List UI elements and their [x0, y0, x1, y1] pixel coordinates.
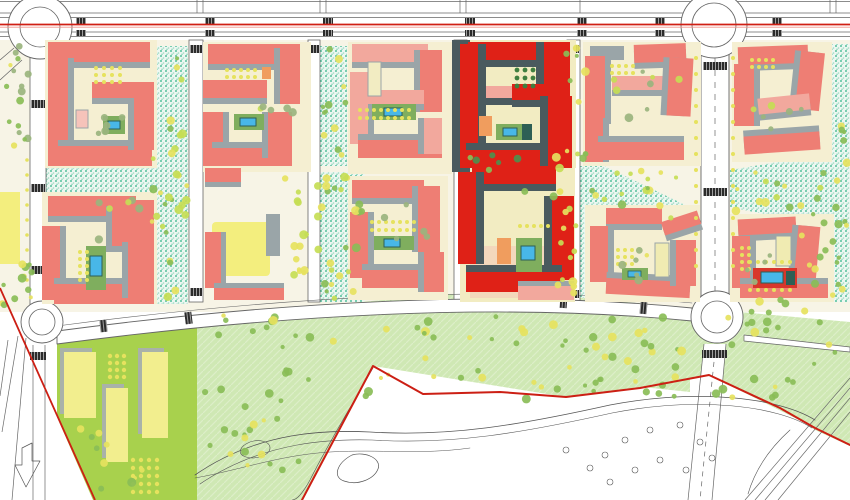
tree-dot — [370, 228, 374, 232]
tree — [672, 394, 677, 399]
orange-court — [497, 238, 511, 264]
tree-dot — [731, 136, 735, 140]
building-roof — [598, 142, 684, 160]
tree — [174, 64, 180, 70]
tree — [647, 80, 654, 87]
tree — [489, 152, 495, 158]
tree — [202, 389, 208, 395]
tree — [830, 238, 837, 245]
tree — [729, 394, 735, 400]
tree — [29, 295, 33, 299]
tree-dot — [731, 248, 735, 252]
tree — [811, 212, 815, 216]
tree — [614, 170, 620, 176]
tree — [633, 379, 638, 384]
building-roof — [666, 57, 693, 116]
tree — [641, 70, 645, 74]
tree — [608, 333, 617, 342]
building — [585, 56, 611, 124]
tree-dot — [110, 80, 114, 84]
tree — [350, 288, 357, 295]
tree — [424, 233, 431, 240]
tree — [290, 271, 298, 279]
tree-dot — [748, 288, 752, 292]
tree-dot — [370, 220, 374, 224]
tree — [293, 256, 300, 263]
tree-dot — [85, 257, 89, 261]
tree — [671, 373, 679, 381]
tree — [171, 287, 179, 295]
tree-dot — [694, 232, 698, 236]
tree — [177, 132, 184, 139]
tree — [836, 282, 841, 287]
tree-dot — [155, 474, 159, 478]
tree — [658, 170, 663, 175]
tree-dot — [764, 58, 768, 62]
tree — [139, 467, 144, 472]
crosswalk-mark — [703, 62, 727, 70]
tree-dot — [94, 80, 98, 84]
tree — [207, 443, 212, 448]
tree-dot — [115, 375, 119, 379]
tree-dot — [78, 271, 82, 275]
tree — [381, 214, 388, 221]
tree — [568, 277, 577, 286]
tree — [568, 78, 573, 83]
pool-water — [503, 128, 517, 136]
tree — [329, 282, 334, 287]
tree — [217, 386, 225, 394]
building — [418, 252, 444, 292]
tree — [563, 51, 569, 57]
tree — [160, 224, 165, 229]
building — [102, 384, 128, 462]
tree — [602, 197, 608, 203]
tree — [555, 282, 562, 289]
tree-dot — [523, 68, 528, 73]
tree — [16, 43, 23, 50]
tree-dot — [147, 458, 151, 462]
tree — [817, 185, 823, 191]
tree-dot — [108, 354, 112, 358]
tree — [7, 119, 12, 124]
tree — [785, 377, 791, 383]
tree — [766, 310, 772, 316]
tree — [589, 333, 597, 341]
tree — [468, 155, 473, 160]
tree — [89, 434, 95, 440]
tree — [151, 156, 156, 161]
tree-dot — [147, 482, 151, 486]
tree — [613, 86, 621, 94]
tree-dot — [694, 72, 698, 76]
crosswalk-mark — [702, 350, 727, 358]
tree-dot — [771, 65, 775, 69]
tree-dot — [757, 58, 761, 62]
building — [205, 168, 241, 187]
tree-dot — [756, 288, 760, 292]
tree-dot — [391, 228, 395, 232]
tree-dot — [122, 375, 126, 379]
tree-dot — [131, 490, 135, 494]
tree — [634, 272, 639, 277]
tree-dot — [523, 76, 528, 81]
tree — [786, 108, 793, 115]
tree — [95, 430, 102, 437]
tree-dot — [405, 228, 409, 232]
building — [661, 57, 694, 116]
tree — [774, 180, 780, 186]
plan-root — [0, 0, 850, 500]
tree-dot — [131, 458, 135, 462]
tree — [568, 255, 573, 260]
building-roof — [458, 172, 476, 264]
tree — [840, 137, 847, 144]
tree-dot — [377, 220, 381, 224]
tree-dot — [731, 152, 735, 156]
building — [262, 112, 292, 158]
tree-dot — [623, 248, 627, 252]
tree-dot — [372, 108, 376, 112]
tree — [761, 114, 766, 119]
tree-dot — [531, 84, 536, 89]
tree — [17, 130, 22, 135]
tree — [106, 205, 113, 212]
tree — [321, 132, 328, 139]
tree — [242, 403, 249, 410]
tree — [279, 466, 286, 473]
tree-dot — [139, 474, 143, 478]
tree — [656, 202, 663, 209]
building — [734, 64, 760, 126]
tree-dot — [788, 288, 792, 292]
tree — [565, 149, 569, 153]
building-roof — [734, 64, 754, 126]
tree — [562, 209, 568, 215]
tree — [282, 175, 288, 181]
tree — [96, 199, 103, 206]
tree — [325, 101, 333, 109]
tree — [352, 243, 361, 252]
tree — [581, 67, 590, 76]
tree — [1, 283, 5, 287]
orange-court — [262, 67, 271, 79]
tree — [563, 338, 568, 343]
building-roof — [64, 352, 96, 418]
building — [518, 281, 574, 300]
tree — [96, 131, 101, 136]
tree-dot — [253, 68, 257, 72]
tree — [834, 220, 842, 228]
tree-dot — [225, 68, 229, 72]
tree — [178, 76, 184, 82]
roundabout-bottom-left-outer — [21, 301, 63, 343]
tree — [725, 315, 731, 321]
tree — [646, 186, 650, 190]
tree — [346, 269, 351, 274]
tree — [811, 265, 818, 272]
crosswalk-mark — [703, 188, 727, 196]
tree — [467, 335, 472, 340]
tree-dot — [85, 250, 89, 254]
tree — [817, 319, 823, 325]
tree-dot — [358, 108, 362, 112]
orange-court — [479, 116, 492, 136]
tree-dot — [115, 361, 119, 365]
tree — [522, 395, 531, 404]
tree-dot — [624, 64, 628, 68]
tree-dot — [379, 116, 383, 120]
tree — [294, 197, 301, 204]
tree — [250, 328, 256, 334]
building — [472, 166, 556, 191]
tree — [293, 333, 298, 338]
tree — [158, 190, 163, 195]
tree-dot — [694, 120, 698, 124]
tree — [338, 187, 343, 192]
tree-dot — [122, 361, 126, 365]
building-roof — [128, 242, 154, 298]
tree-dot — [694, 216, 698, 220]
tree — [8, 63, 12, 67]
tree — [762, 260, 767, 265]
building-roof — [280, 48, 300, 104]
tree — [558, 240, 564, 246]
building — [214, 283, 284, 300]
tree — [768, 253, 773, 258]
tree-dot — [122, 354, 126, 358]
tree — [801, 307, 808, 314]
tree-dot — [407, 116, 411, 120]
tree-dot — [25, 218, 29, 222]
tree-dot — [253, 75, 257, 79]
tree — [728, 341, 735, 348]
site-plan-svg — [0, 0, 850, 500]
street-col1 — [189, 40, 203, 302]
tree — [812, 362, 816, 366]
tree — [306, 333, 315, 342]
tree-dot — [239, 75, 243, 79]
tree-dot — [25, 233, 29, 237]
tree — [611, 76, 617, 82]
tree — [11, 295, 18, 302]
tree — [265, 389, 274, 398]
tree-dot — [750, 65, 754, 69]
tree — [150, 219, 155, 224]
building-roof — [205, 232, 221, 288]
tree — [570, 289, 577, 296]
tree — [164, 293, 172, 301]
tree-dot — [391, 220, 395, 224]
tree — [645, 177, 650, 182]
tree — [383, 326, 390, 333]
building — [128, 98, 154, 150]
crosswalk-mark — [323, 30, 333, 36]
tree — [618, 261, 626, 269]
crosswalk-mark — [31, 184, 45, 192]
building-roof — [424, 252, 444, 292]
tree — [164, 230, 169, 235]
tree — [268, 107, 275, 114]
tree — [643, 388, 650, 395]
tree — [624, 357, 632, 365]
tree — [290, 242, 298, 250]
tree — [22, 137, 27, 142]
tree — [475, 368, 481, 374]
tree-dot — [386, 116, 390, 120]
tree — [514, 155, 522, 163]
tree — [16, 97, 24, 105]
tree — [326, 46, 332, 52]
tree — [763, 327, 769, 333]
building-roof — [472, 166, 556, 184]
tree — [296, 458, 302, 464]
tree — [431, 374, 436, 379]
tree-dot — [694, 88, 698, 92]
crosswalk-mark — [205, 30, 215, 36]
tree — [602, 353, 609, 360]
tree — [269, 316, 278, 325]
tree — [28, 269, 34, 275]
tree-dot — [546, 224, 550, 228]
tree — [576, 99, 582, 105]
tree — [592, 192, 599, 199]
tree — [625, 113, 634, 122]
tree — [573, 223, 578, 228]
tree-dot — [694, 104, 698, 108]
building — [122, 242, 154, 298]
tree-dot — [757, 65, 761, 69]
tree — [799, 107, 804, 112]
tree — [753, 170, 757, 174]
tree — [645, 253, 649, 257]
tree — [768, 126, 773, 131]
tree — [655, 390, 662, 397]
tree-dot — [523, 84, 528, 89]
crosswalk-mark — [772, 18, 782, 24]
tree — [822, 247, 828, 253]
tree — [756, 198, 763, 205]
tree — [820, 170, 826, 176]
garden-dark — [522, 124, 532, 140]
building — [418, 118, 442, 154]
tree — [424, 317, 433, 326]
tree — [575, 152, 580, 157]
tree — [583, 384, 587, 388]
tree — [608, 316, 616, 324]
tree — [786, 204, 793, 211]
tree-dot — [731, 168, 735, 172]
tree — [674, 175, 678, 179]
tree — [745, 268, 750, 273]
tree — [306, 377, 311, 382]
tree — [16, 123, 21, 128]
tree-dot — [246, 75, 250, 79]
tree — [223, 317, 228, 322]
tree-dot — [393, 116, 397, 120]
tree-dot — [731, 184, 735, 188]
tree — [478, 374, 486, 382]
tree — [560, 343, 564, 347]
tree — [839, 286, 846, 293]
tree — [322, 182, 330, 190]
tree-dot — [131, 466, 135, 470]
tree — [773, 194, 780, 201]
tree — [404, 202, 409, 207]
pool-water — [240, 118, 256, 126]
tree-dot — [118, 73, 122, 77]
tree-dot — [731, 72, 735, 76]
crosswalk-mark — [31, 100, 45, 108]
tree-dot — [731, 232, 735, 236]
crosswalk-mark — [184, 312, 192, 325]
tree-dot — [365, 116, 369, 120]
tree-dot — [155, 490, 159, 494]
building-roof — [612, 76, 670, 90]
pale-building — [368, 62, 381, 96]
tree — [341, 84, 346, 89]
tree — [735, 187, 739, 191]
tree — [241, 448, 249, 456]
tree — [19, 83, 25, 89]
tree — [221, 426, 228, 433]
building-roof — [106, 388, 128, 462]
tree — [490, 337, 494, 341]
tree — [241, 434, 248, 441]
tree — [539, 384, 544, 389]
tree — [149, 185, 157, 193]
tree — [339, 152, 345, 158]
tree-dot — [108, 361, 112, 365]
tree — [826, 341, 832, 347]
tree — [335, 55, 343, 63]
building — [205, 232, 226, 288]
tree-dot — [694, 248, 698, 252]
pale-building — [655, 243, 669, 277]
tree-dot — [78, 257, 82, 261]
tree — [262, 418, 266, 422]
tree-dot — [102, 66, 106, 70]
tree — [288, 108, 296, 116]
tree-dot — [232, 68, 236, 72]
tree-dot — [412, 220, 416, 224]
building-roof — [92, 82, 154, 98]
building — [598, 136, 684, 160]
tree-dot — [139, 490, 143, 494]
tree-dot — [616, 255, 620, 259]
tree-dot — [25, 203, 29, 207]
tree — [631, 365, 639, 373]
tree-dot — [155, 458, 159, 462]
masterplan-map — [0, 0, 850, 500]
tree-dot — [731, 88, 735, 92]
tree — [184, 183, 189, 188]
tree-dot — [610, 71, 614, 75]
building — [274, 48, 300, 104]
building-roof — [418, 186, 440, 252]
tree-dot — [147, 474, 151, 478]
tree-dot — [147, 490, 151, 494]
tree-dot — [515, 84, 520, 89]
tree — [167, 126, 173, 132]
building — [138, 348, 168, 438]
tree — [175, 56, 179, 60]
tree-dot — [108, 375, 112, 379]
tree — [394, 236, 399, 241]
tree — [833, 350, 838, 355]
crosswalk-mark — [99, 320, 107, 333]
tree — [221, 313, 225, 317]
